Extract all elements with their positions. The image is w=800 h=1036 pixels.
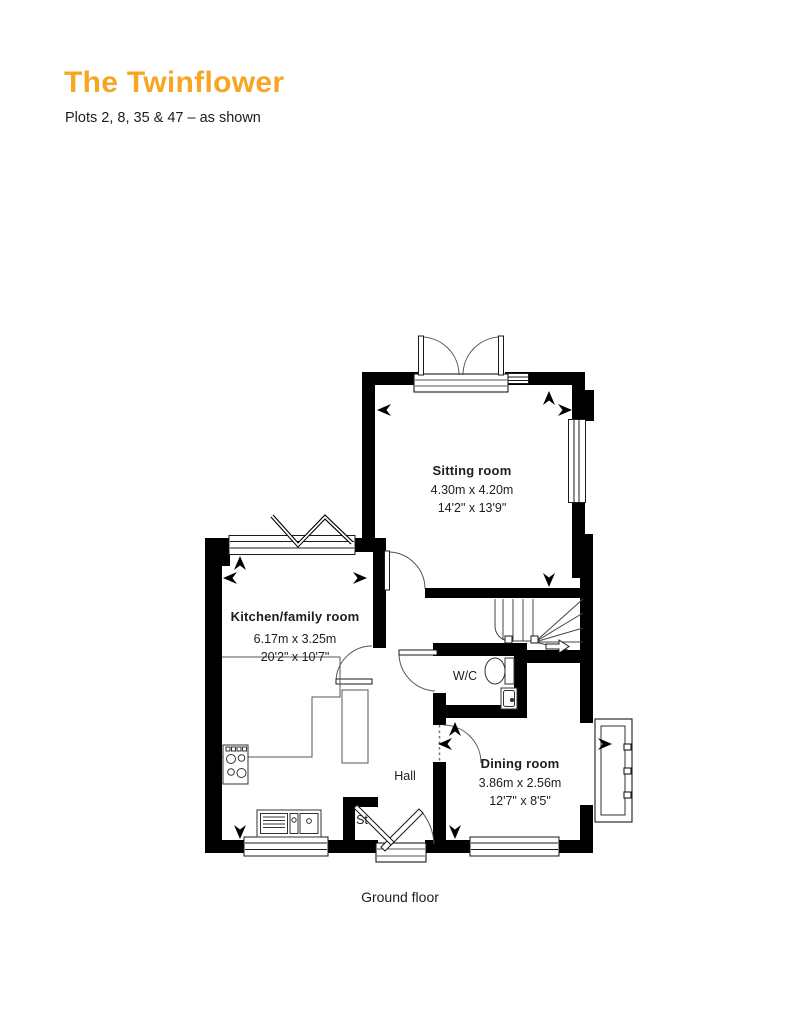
room-dim-imperial: 12'7" x 8'5" <box>430 795 610 808</box>
wc-label: W/C <box>440 669 490 683</box>
sitting-room-label: Sitting room 4.30m x 4.20m 14'2" x 13'9" <box>372 464 572 514</box>
room-name: Sitting room <box>372 464 572 477</box>
sink-icon <box>257 810 321 837</box>
arrow-sitting-left <box>377 404 391 416</box>
hob-icon <box>223 745 248 784</box>
door-wc <box>399 650 437 691</box>
kitchen-counter <box>222 657 340 757</box>
arrow-kitchen-top <box>234 556 246 570</box>
room-name: Kitchen/family room <box>195 610 395 623</box>
room-dim-imperial: 14'2" x 13'9" <box>372 502 572 515</box>
kitchen-room-label: Kitchen/family room 6.17m x 3.25m 20'2" … <box>195 610 395 663</box>
arrow-kitchen-right <box>353 572 367 584</box>
room-dim-metric: 4.30m x 4.20m <box>372 484 572 497</box>
window-sitting-top <box>506 374 529 384</box>
room-dim-metric: 6.17m x 3.25m <box>195 633 395 646</box>
arrow-dining-bottom <box>449 825 461 839</box>
tall-unit <box>342 690 368 763</box>
room-dim-metric: 3.86m x 2.56m <box>430 777 610 790</box>
store-label: St <box>344 813 380 827</box>
door-sitting <box>385 551 426 590</box>
window-kitchen-bottom <box>244 837 328 856</box>
arrow-sitting-top <box>543 391 555 405</box>
wc-fixtures <box>485 658 517 709</box>
window-dining-bottom <box>470 837 559 856</box>
floor-caption: Ground floor <box>300 889 500 905</box>
arrow-sitting-bottom <box>543 573 555 587</box>
hall-label: Hall <box>375 769 435 783</box>
page: The Twinflower Plots 2, 8, 35 & 47 – as … <box>0 0 800 1036</box>
arrow-kitchen-left <box>223 572 237 584</box>
floor-plan <box>0 0 800 1036</box>
room-name: Dining room <box>430 757 610 770</box>
basin-icon <box>501 688 517 709</box>
room-dim-imperial: 20'2" x 10'7" <box>195 651 395 664</box>
arrow-sitting-right <box>558 404 572 416</box>
dining-room-label: Dining room 3.86m x 2.56m 12'7" x 8'5" <box>430 757 610 807</box>
french-doors <box>414 336 508 392</box>
